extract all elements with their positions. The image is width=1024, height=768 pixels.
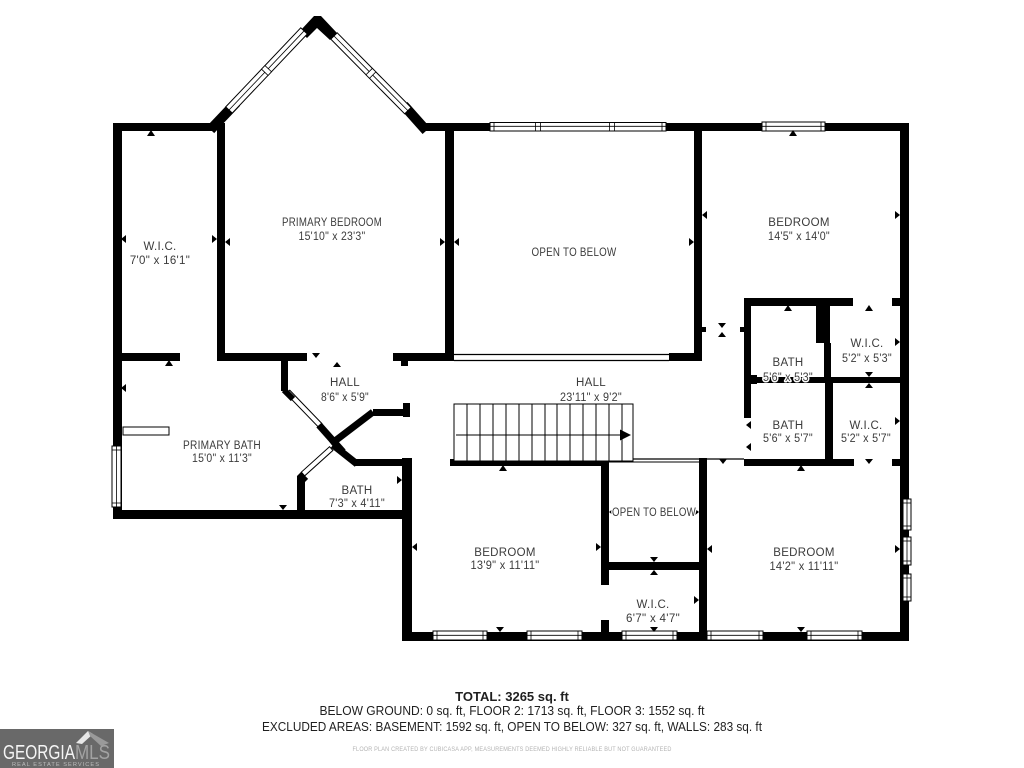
svg-text:BEDROOM: BEDROOM: [768, 217, 830, 229]
svg-text:7'0" x 16'1": 7'0" x 16'1": [130, 255, 190, 267]
svg-text:PRIMARY BEDROOM: PRIMARY BEDROOM: [282, 217, 382, 229]
svg-text:5'6" x 5'7": 5'6" x 5'7": [763, 433, 813, 445]
svg-text:8'6" x 5'9": 8'6" x 5'9": [321, 392, 369, 404]
svg-text:BELOW GROUND: 0 sq. ft, FLOOR: BELOW GROUND: 0 sq. ft, FLOOR 2: 1713 sq…: [320, 703, 705, 718]
svg-text:TOTAL: 3265 sq. ft: TOTAL: 3265 sq. ft: [455, 689, 569, 704]
svg-text:W.I.C.: W.I.C.: [143, 241, 176, 253]
svg-text:W.I.C.: W.I.C.: [636, 599, 669, 611]
svg-text:7'3" x 4'11": 7'3" x 4'11": [329, 498, 385, 510]
svg-text:GEORGIA: GEORGIA: [3, 742, 76, 764]
svg-text:HALL: HALL: [330, 377, 360, 389]
svg-text:13'9" x 11'11": 13'9" x 11'11": [471, 560, 540, 572]
svg-text:23'11" x 9'2": 23'11" x 9'2": [560, 392, 622, 404]
svg-text:OPEN TO BELOW: OPEN TO BELOW: [532, 247, 617, 259]
svg-text:15'0" x 11'3": 15'0" x 11'3": [192, 453, 252, 465]
svg-text:MLS: MLS: [75, 742, 110, 764]
svg-text:6'7" x 4'7": 6'7" x 4'7": [626, 613, 680, 625]
svg-text:BATH: BATH: [772, 420, 803, 432]
svg-text:5'6" x 5'3": 5'6" x 5'3": [763, 372, 813, 384]
svg-text:EXCLUDED AREAS: BASEMENT: 1592: EXCLUDED AREAS: BASEMENT: 1592 sq. ft, O…: [262, 719, 762, 734]
svg-text:BATH: BATH: [341, 485, 372, 497]
svg-text:FLOOR PLAN CREATED BY CUBICASA: FLOOR PLAN CREATED BY CUBICASA APP, MEAS…: [353, 746, 672, 753]
svg-text:REAL ESTATE SERVICES: REAL ESTATE SERVICES: [12, 762, 100, 768]
svg-text:HALL: HALL: [576, 377, 606, 389]
svg-text:W.I.C.: W.I.C.: [849, 420, 882, 432]
svg-text:BEDROOM: BEDROOM: [474, 547, 536, 559]
svg-text:OPEN TO BELOW: OPEN TO BELOW: [612, 507, 696, 519]
svg-text:BEDROOM: BEDROOM: [773, 547, 835, 559]
svg-text:14'2" x 11'11": 14'2" x 11'11": [770, 561, 839, 573]
svg-text:PRIMARY BATH: PRIMARY BATH: [183, 440, 261, 452]
svg-text:W.I.C.: W.I.C.: [850, 338, 883, 350]
svg-text:15'10" x 23'3": 15'10" x 23'3": [299, 231, 366, 243]
svg-text:BATH: BATH: [772, 357, 803, 369]
svg-text:5'2" x 5'7": 5'2" x 5'7": [841, 433, 891, 445]
svg-text:5'2" x 5'3": 5'2" x 5'3": [842, 353, 892, 365]
svg-text:14'5" x 14'0": 14'5" x 14'0": [768, 231, 830, 243]
